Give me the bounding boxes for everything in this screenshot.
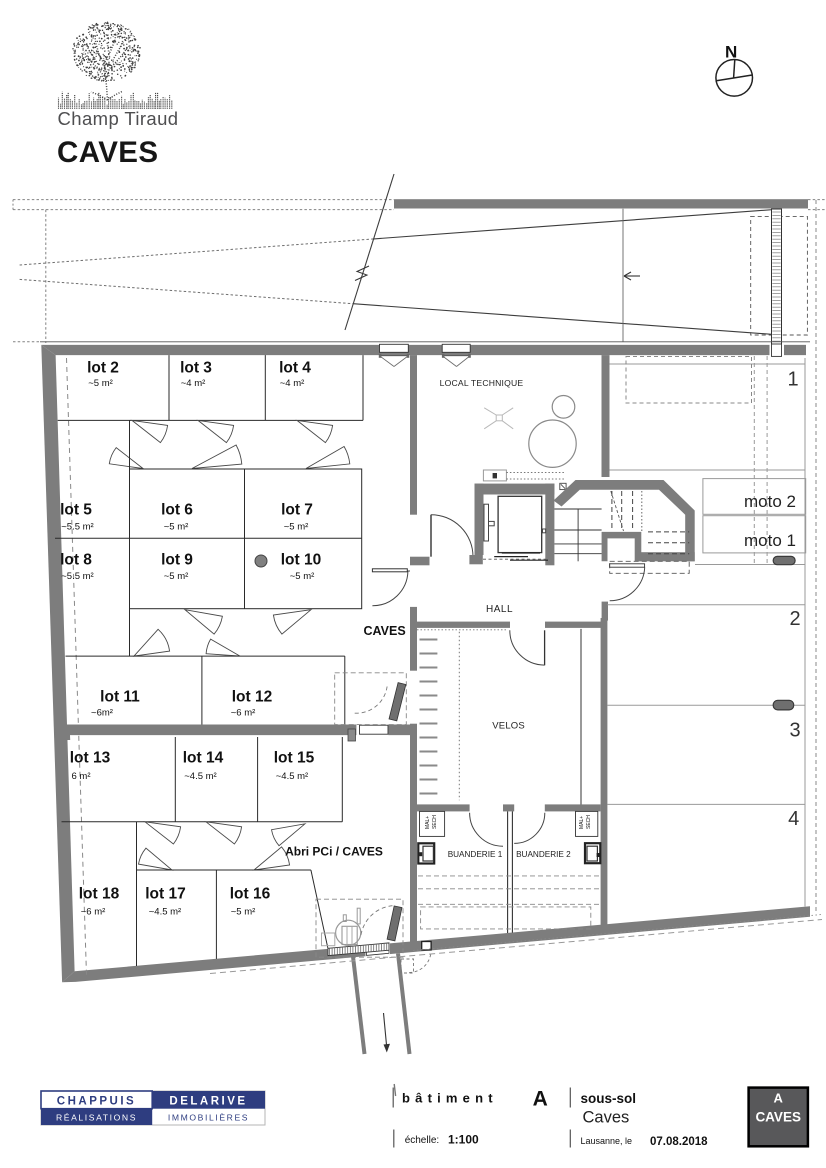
- svg-text:A: A: [774, 1091, 784, 1106]
- svg-text:IMMOBILIÈRES: IMMOBILIÈRES: [168, 1112, 249, 1122]
- svg-text:SECH: SECH: [586, 815, 592, 829]
- svg-text:moto 2: moto 2: [744, 492, 796, 511]
- svg-text:bâtiment: bâtiment: [402, 1091, 498, 1106]
- svg-text:07.08.2018: 07.08.2018: [650, 1136, 708, 1148]
- svg-text:lot 4: lot 4: [279, 360, 311, 377]
- svg-text:Abri PCi / CAVES: Abri PCi / CAVES: [285, 845, 383, 859]
- svg-text:Caves: Caves: [583, 1109, 630, 1127]
- svg-text:~5 m²: ~5 m²: [290, 571, 315, 582]
- svg-text:Lausanne, le: Lausanne, le: [581, 1136, 633, 1146]
- svg-text:lot 5: lot 5: [60, 502, 92, 519]
- svg-text:MAL+: MAL+: [425, 816, 431, 829]
- svg-text:lot 17: lot 17: [145, 886, 185, 903]
- svg-text:~5 m²: ~5 m²: [284, 522, 309, 533]
- svg-text:lot 14: lot 14: [183, 750, 224, 767]
- svg-text:3: 3: [789, 720, 800, 742]
- svg-text:SECH: SECH: [432, 815, 438, 829]
- svg-text:MAL+: MAL+: [579, 816, 585, 829]
- svg-text:6 m²: 6 m²: [72, 771, 91, 782]
- svg-text:RÉALISATIONS: RÉALISATIONS: [56, 1112, 137, 1122]
- svg-text:~6 m²: ~6 m²: [81, 907, 106, 918]
- svg-text:échelle:: échelle:: [405, 1135, 439, 1146]
- svg-text:4: 4: [788, 808, 799, 830]
- svg-text:lot 18: lot 18: [79, 886, 120, 903]
- svg-text:lot 9: lot 9: [161, 552, 193, 569]
- svg-text:lot 11: lot 11: [100, 689, 140, 706]
- svg-text:CHAPPUIS: CHAPPUIS: [57, 1095, 136, 1107]
- svg-text:lot 2: lot 2: [87, 360, 119, 377]
- svg-text:1:100: 1:100: [448, 1133, 479, 1147]
- svg-text:~5 m²: ~5 m²: [88, 378, 113, 389]
- svg-text:~5 m²: ~5 m²: [164, 571, 189, 582]
- svg-text:HALL: HALL: [486, 604, 513, 615]
- svg-text:~4 m²: ~4 m²: [181, 378, 206, 389]
- svg-text:lot 6: lot 6: [161, 502, 193, 519]
- svg-text:LOCAL TECHNIQUE: LOCAL TECHNIQUE: [440, 378, 524, 388]
- svg-text:VELOS: VELOS: [492, 721, 525, 732]
- svg-text:lot 16: lot 16: [230, 886, 271, 903]
- svg-text:2: 2: [789, 608, 800, 630]
- svg-text:~4.5 m²: ~4.5 m²: [276, 771, 308, 782]
- svg-text:lot 10: lot 10: [281, 552, 321, 569]
- svg-text:~5 m²: ~5 m²: [164, 522, 189, 533]
- svg-text:N: N: [725, 43, 737, 62]
- svg-text:~4.5 m²: ~4.5 m²: [149, 907, 181, 918]
- svg-text:CAVES: CAVES: [57, 136, 158, 169]
- svg-text:~6m²: ~6m²: [91, 708, 113, 719]
- svg-text:lot 12: lot 12: [232, 689, 272, 706]
- svg-text:moto 1: moto 1: [744, 531, 796, 550]
- svg-text:DELARIVE: DELARIVE: [169, 1095, 247, 1107]
- svg-text:lot 8: lot 8: [60, 552, 92, 569]
- svg-text:lot 15: lot 15: [274, 750, 315, 767]
- svg-text:A: A: [533, 1087, 548, 1110]
- svg-text:1: 1: [787, 369, 798, 391]
- svg-text:~5.5 m²: ~5.5 m²: [61, 522, 93, 533]
- svg-text:BUANDERIE 2: BUANDERIE 2: [516, 850, 571, 859]
- svg-text:lot 13: lot 13: [70, 750, 111, 767]
- svg-text:sous-sol: sous-sol: [581, 1091, 637, 1106]
- svg-text:CAVES: CAVES: [755, 1110, 801, 1125]
- svg-text:~5 m²: ~5 m²: [231, 907, 256, 918]
- svg-text:~4.5 m²: ~4.5 m²: [184, 771, 216, 782]
- svg-text:lot 3: lot 3: [180, 360, 212, 377]
- svg-text:CAVES: CAVES: [364, 624, 406, 638]
- svg-text:~6 m²: ~6 m²: [231, 708, 256, 719]
- svg-text:~4 m²: ~4 m²: [280, 378, 305, 389]
- svg-text:BUANDERIE 1: BUANDERIE 1: [448, 850, 503, 859]
- svg-text:~5.5 m²: ~5.5 m²: [61, 571, 93, 582]
- svg-text:Champ Tiraud: Champ Tiraud: [58, 108, 179, 129]
- svg-text:lot 7: lot 7: [281, 502, 313, 519]
